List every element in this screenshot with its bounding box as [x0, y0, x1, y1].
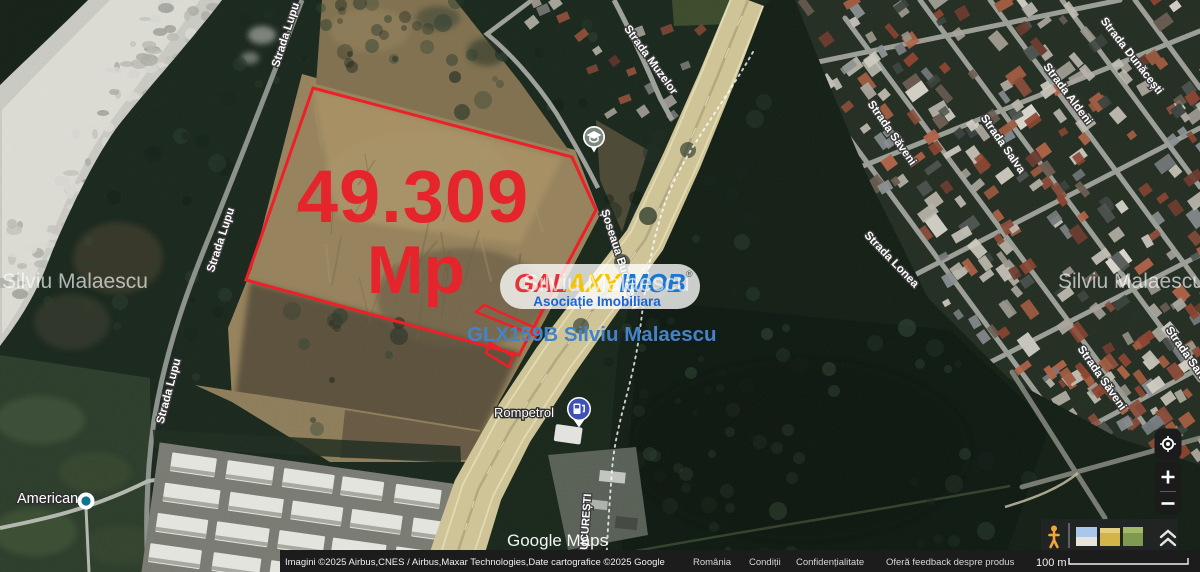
svg-text:49.309: 49.309: [297, 155, 529, 238]
svg-text:100 m: 100 m: [1036, 557, 1067, 569]
svg-text:Condiții: Condiții: [749, 557, 781, 568]
svg-text:GLX159B Silviu Malaescu: GLX159B Silviu Malaescu: [467, 323, 717, 346]
svg-text:American: American: [17, 491, 78, 507]
svg-text:Google Maps: Google Maps: [507, 531, 608, 550]
svg-text:Mp: Mp: [367, 232, 465, 308]
svg-text:Confidențialitate: Confidențialitate: [796, 557, 864, 568]
svg-text:Oferă feedback despre produs: Oferă feedback despre produs: [886, 557, 1015, 568]
svg-text:România: România: [693, 557, 732, 568]
svg-text:Silviu Malaescu: Silviu Malaescu: [523, 270, 690, 297]
svg-text:Imagini ©2025 Airbus,CNES / Ai: Imagini ©2025 Airbus,CNES / Airbus,Maxar…: [285, 557, 665, 568]
svg-text:Silviu Malaescu: Silviu Malaescu: [1058, 270, 1200, 293]
svg-text:Silviu Malaescu: Silviu Malaescu: [2, 270, 148, 293]
svg-text:Rompetrol: Rompetrol: [494, 405, 554, 420]
